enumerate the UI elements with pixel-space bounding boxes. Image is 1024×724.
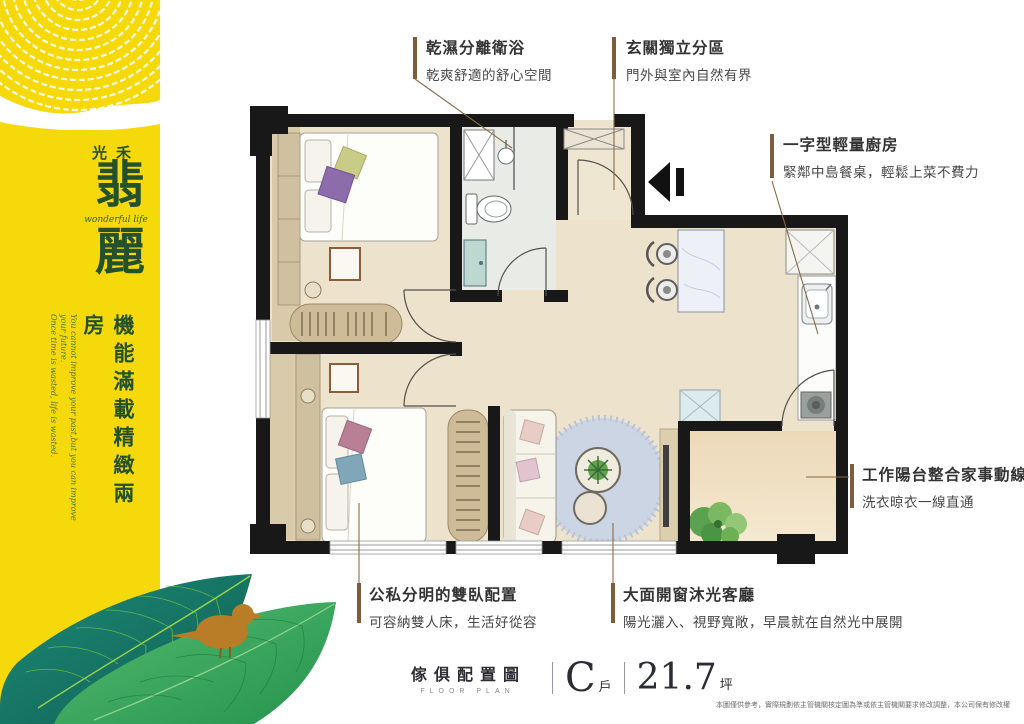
callout-bar: [612, 37, 616, 79]
brand-name-char-1: 翡: [95, 160, 145, 210]
master-nightstand: [330, 248, 360, 280]
callout-bedrooms: 公私分明的雙臥配置 可容納雙人床，生活好從容: [369, 583, 537, 631]
master-wardrobe-rack: [290, 304, 402, 344]
entrance-arrow-icon: [648, 162, 684, 202]
sofa-pillow: [516, 458, 540, 482]
area-unit: 坪: [720, 674, 733, 693]
island-table: [678, 230, 724, 312]
column: [777, 534, 815, 564]
callout-title: 玄關獨立分區: [626, 36, 752, 58]
callout-title: 大面開窗沐光客廳: [623, 583, 903, 605]
tree-rings-pattern-icon: [0, 0, 160, 130]
callout-desc: 緊鄰中島餐桌，輕鬆上菜不費力: [783, 161, 979, 181]
floor-plan-page: 光禾 翡 wonderful life 麗 機能滿載精緻兩房 You canno…: [0, 0, 1024, 724]
callout-desc: 門外與室內自然有界: [626, 64, 752, 84]
bedroom2-lamp: [301, 519, 315, 533]
deco-pillow-blue: [336, 454, 367, 485]
bedroom2-headboard: [296, 354, 320, 540]
bedroom2-lamp: [301, 389, 315, 403]
unit-suffix: 戶: [599, 676, 612, 695]
table-plant: [584, 456, 612, 484]
basin: [498, 148, 514, 164]
sofa-pillow: [520, 420, 544, 444]
footer-divider: [552, 662, 553, 694]
footer: 傢俱配置圖 FLOOR PLAN C 戶 21.7 坪: [404, 658, 733, 698]
callout-title: 乾濕分離衛浴: [426, 36, 552, 58]
callout-title: 一字型輕量廚房: [783, 133, 979, 155]
plan-label-en: FLOOR PLAN: [415, 688, 514, 695]
callout-bar: [850, 464, 854, 508]
floor-plan-svg: [250, 98, 850, 568]
unit-number: C 戶: [565, 658, 612, 698]
callout-bathroom: 乾濕分離衛浴 乾爽舒適的舒心空間: [426, 36, 552, 84]
disclaimer: 本圖僅供參考，實際規劃依主管機關核定圖為準或依主管機關要求修改調整，本公司保有修…: [716, 700, 1010, 710]
plan-label-zh: 傢俱配置圖: [404, 661, 526, 685]
leaves-bird-illustration: [0, 544, 345, 724]
unit-letter: C: [565, 658, 596, 698]
tagline-english-line2: Once time is wasted, life is wasted.: [48, 314, 58, 529]
callout-title: 公私分明的雙臥配置: [369, 583, 537, 605]
brand-name-char-2: 麗: [95, 227, 145, 277]
callout-title: 工作陽台整合家事動線: [862, 463, 1024, 485]
entry: [564, 129, 624, 149]
coffee-table-small: [574, 492, 606, 524]
callout-bar: [357, 583, 361, 623]
master-lamp: [305, 282, 321, 298]
toilet: [477, 196, 511, 222]
tv: [663, 445, 669, 527]
callout-entry: 玄關獨立分區 門外與室內自然有界: [626, 36, 752, 84]
callout-kitchen: 一字型輕量廚房 緊鄰中島餐桌，輕鬆上菜不費力: [783, 133, 979, 181]
callout-desc: 陽光灑入、視野寬敞，早晨就在自然光中展開: [623, 611, 903, 631]
callout-living: 大面開窗沐光客廳 陽光灑入、視野寬敞，早晨就在自然光中展開: [623, 583, 903, 631]
bedroom2-nightstand: [330, 364, 358, 392]
toilet-tank: [466, 194, 477, 224]
footer-divider: [624, 662, 625, 694]
brand-tagline-vertical: 機能滿載精緻兩房: [78, 314, 138, 524]
callout-desc: 洗衣晾衣一線直通: [862, 491, 1024, 511]
callout-desc: 乾爽舒適的舒心空間: [426, 64, 552, 84]
callout-balcony: 工作陽台整合家事動線 洗衣晾衣一線直通: [862, 463, 1024, 511]
unit-area: 21.7 坪: [637, 660, 733, 696]
tagline-english-line1: You cannot improve your past,but you can…: [58, 314, 78, 529]
sofa-back: [504, 410, 516, 544]
callout-bar: [413, 37, 417, 79]
callout-desc: 可容納雙人床，生活好從容: [369, 611, 537, 631]
callout-bar: [611, 583, 615, 623]
area-value: 21.7: [637, 660, 717, 696]
plan-label: 傢俱配置圖 FLOOR PLAN: [404, 661, 526, 695]
brand-tagline-english: You cannot improve your past,but you can…: [48, 314, 78, 529]
